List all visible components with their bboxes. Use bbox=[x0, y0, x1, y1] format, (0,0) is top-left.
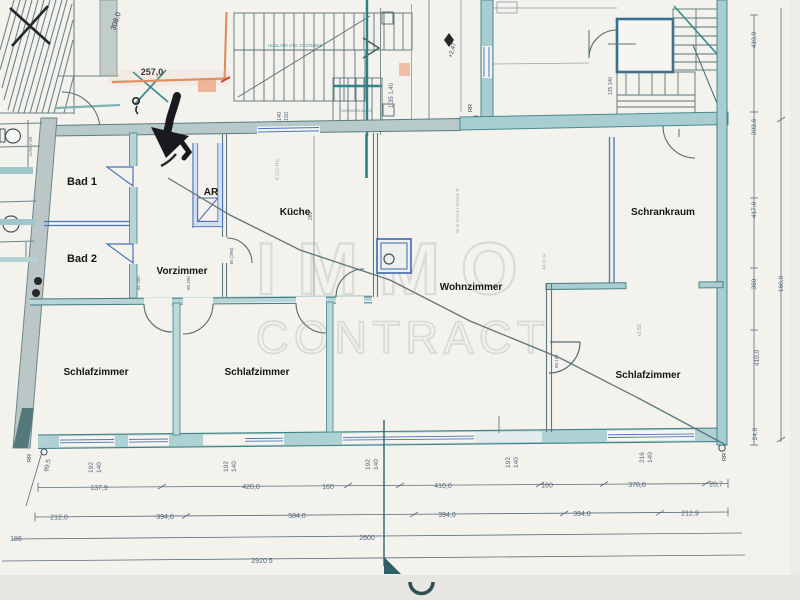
svg-text:1B.GLANZ STG.17,2/29 BKB: 1B.GLANZ STG.17,2/29 BKB bbox=[268, 43, 323, 48]
svg-text:160,0: 160,0 bbox=[778, 275, 785, 292]
svg-text:140: 140 bbox=[373, 459, 380, 470]
svg-text:140: 140 bbox=[513, 457, 520, 468]
svg-text:Schlafzimmer: Schlafzimmer bbox=[63, 367, 128, 378]
svg-text:Bad 2: Bad 2 bbox=[67, 253, 97, 265]
svg-text:150: 150 bbox=[284, 112, 290, 121]
svg-text:203,6: 203,6 bbox=[751, 118, 758, 135]
svg-text:410,0: 410,0 bbox=[751, 31, 758, 48]
svg-text:44,9 m²: 44,9 m² bbox=[542, 253, 548, 270]
svg-text:24,6: 24,6 bbox=[752, 427, 759, 440]
svg-text:410,0: 410,0 bbox=[754, 349, 761, 366]
svg-text:410,0: 410,0 bbox=[434, 483, 452, 490]
svg-text:584,0: 584,0 bbox=[288, 513, 306, 520]
svg-text:212,0: 212,0 bbox=[50, 515, 68, 522]
svg-text:WOHNZIMMER: WOHNZIMMER bbox=[455, 187, 461, 233]
svg-text:135 140: 135 140 bbox=[608, 77, 614, 95]
svg-text:180: 180 bbox=[541, 483, 553, 490]
svg-text:85 (200): 85 (200) bbox=[229, 247, 234, 264]
svg-text:192: 192 bbox=[223, 461, 230, 472]
svg-text:216: 216 bbox=[639, 452, 646, 463]
svg-text:Wohnzimmer: Wohnzimmer bbox=[440, 282, 503, 293]
svg-text:RR: RR bbox=[468, 104, 474, 112]
svg-text:RR: RR bbox=[27, 454, 33, 462]
svg-text:140: 140 bbox=[277, 112, 283, 121]
svg-text:140: 140 bbox=[96, 462, 103, 473]
svg-text:212,9: 212,9 bbox=[681, 511, 699, 518]
svg-text:Küche: Küche bbox=[280, 207, 311, 218]
svg-text:CAB 7,80: CAB 7,80 bbox=[28, 136, 33, 156]
svg-text:192: 192 bbox=[88, 462, 95, 473]
svg-text:137,9: 137,9 bbox=[90, 485, 108, 492]
svg-text:1,35 1,40: 1,35 1,40 bbox=[389, 82, 395, 108]
svg-text:85 200: 85 200 bbox=[136, 276, 141, 290]
svg-text:394,0: 394,0 bbox=[156, 514, 174, 521]
svg-text:Vorzimmer: Vorzimmer bbox=[157, 266, 208, 277]
svg-text:20,7: 20,7 bbox=[709, 482, 723, 489]
svg-text:420,0: 420,0 bbox=[242, 484, 260, 491]
svg-text:140: 140 bbox=[231, 461, 238, 472]
svg-text:+2,62: +2,62 bbox=[637, 324, 643, 337]
svg-text:Bad 1: Bad 1 bbox=[67, 176, 97, 188]
svg-text:Schrankraum: Schrankraum bbox=[631, 207, 695, 218]
svg-text:192: 192 bbox=[505, 457, 512, 468]
svg-text:186: 186 bbox=[10, 536, 22, 543]
svg-text:192: 192 bbox=[365, 459, 372, 470]
svg-text:2920 5: 2920 5 bbox=[251, 558, 273, 565]
svg-text:160: 160 bbox=[322, 484, 334, 491]
svg-text:90 200: 90 200 bbox=[186, 276, 191, 290]
svg-text:370,0: 370,0 bbox=[628, 482, 646, 489]
svg-text:360: 360 bbox=[751, 278, 758, 289]
svg-text:RR: RR bbox=[722, 453, 728, 461]
svg-text:AR: AR bbox=[204, 187, 219, 198]
svg-text:394,0: 394,0 bbox=[573, 511, 591, 518]
svg-text:Schlafzimmer: Schlafzimmer bbox=[224, 367, 289, 378]
svg-text:2600: 2600 bbox=[359, 535, 375, 542]
svg-text:394,0: 394,0 bbox=[438, 512, 456, 519]
svg-text:CONTRACT: CONTRACT bbox=[256, 312, 550, 363]
svg-text:Schlafzimmer: Schlafzimmer bbox=[615, 370, 680, 381]
svg-text:140: 140 bbox=[647, 452, 654, 463]
svg-text:417,0: 417,0 bbox=[751, 201, 758, 218]
svg-text:KÜCHE: KÜCHE bbox=[274, 157, 281, 180]
svg-text:257,0: 257,0 bbox=[141, 67, 164, 77]
